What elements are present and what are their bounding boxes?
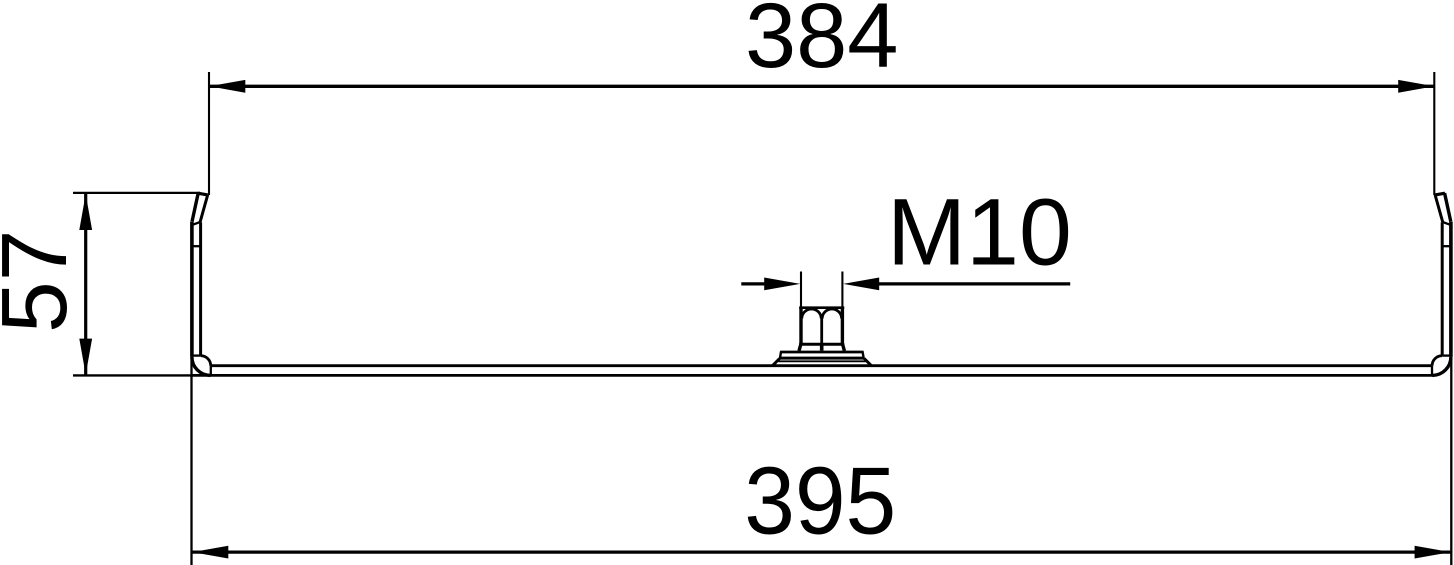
svg-text:395: 395 bbox=[744, 447, 896, 554]
svg-text:384: 384 bbox=[745, 0, 899, 87]
svg-text:M10: M10 bbox=[887, 180, 1072, 286]
svg-text:57: 57 bbox=[0, 230, 86, 333]
